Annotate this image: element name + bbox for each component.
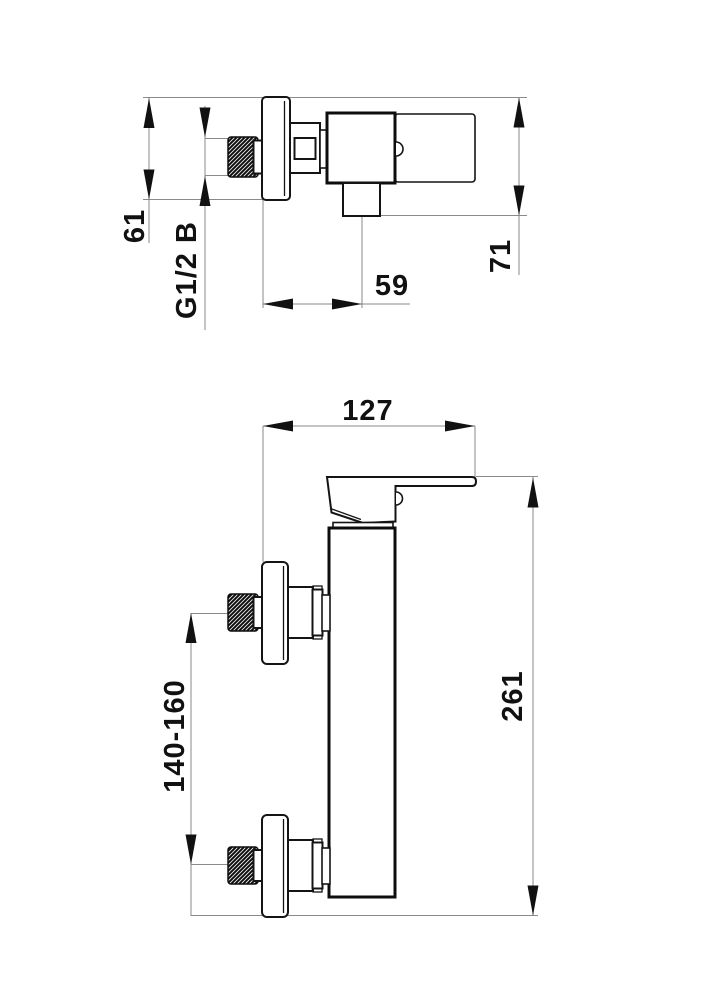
dim-label-61: 61 bbox=[119, 209, 151, 243]
arrow-up-71 bbox=[514, 98, 525, 128]
arrow-left-59 bbox=[263, 299, 293, 310]
dim-label-127: 127 bbox=[342, 395, 393, 427]
drawing-page: 61 G1/2 B 59 71 127 140-160 261 bbox=[0, 0, 706, 1000]
dim-label-g12b: G1/2 B bbox=[171, 221, 203, 319]
mixer-body-top bbox=[327, 113, 395, 183]
lower-inlet-connector bbox=[228, 815, 330, 917]
lever-pivot-arc-front bbox=[396, 492, 403, 505]
arrow-right-59 bbox=[332, 299, 362, 310]
arrow-down-140-160 bbox=[186, 835, 197, 865]
outlet-spout-top bbox=[343, 183, 380, 216]
lever-pivot-arc-top bbox=[396, 142, 403, 156]
front-view: 127 140-160 261 bbox=[159, 395, 539, 917]
escutcheon-plate-top bbox=[262, 97, 290, 200]
arrow-down-61 bbox=[144, 170, 155, 200]
ext-lines-thread bbox=[205, 139, 228, 176]
ext-lines-inlet-centers bbox=[191, 614, 228, 865]
top-view: 61 G1/2 B 59 71 bbox=[119, 97, 527, 330]
arrow-down-71 bbox=[514, 186, 525, 216]
arrow-right-127 bbox=[445, 421, 475, 432]
arrow-up-61 bbox=[144, 98, 155, 128]
mixer-body-front bbox=[329, 528, 395, 897]
technical-drawing: 61 G1/2 B 59 71 127 140-160 261 bbox=[0, 0, 706, 1000]
upper-inlet-connector bbox=[228, 562, 330, 664]
arrow-down-g12b bbox=[200, 108, 211, 138]
arrow-up-140-160 bbox=[186, 613, 197, 643]
arrow-down-261 bbox=[528, 886, 539, 916]
dim-label-71: 71 bbox=[485, 239, 517, 273]
arrow-up-261 bbox=[528, 478, 539, 508]
arrow-left-127 bbox=[263, 421, 293, 432]
connector-nut-top bbox=[295, 138, 316, 159]
dim-label-140-160: 140-160 bbox=[159, 679, 191, 792]
dim-label-261: 261 bbox=[497, 670, 529, 721]
dim-label-59: 59 bbox=[375, 270, 409, 302]
lever-handle-top bbox=[395, 114, 475, 182]
arrow-up-g12b bbox=[200, 176, 211, 206]
